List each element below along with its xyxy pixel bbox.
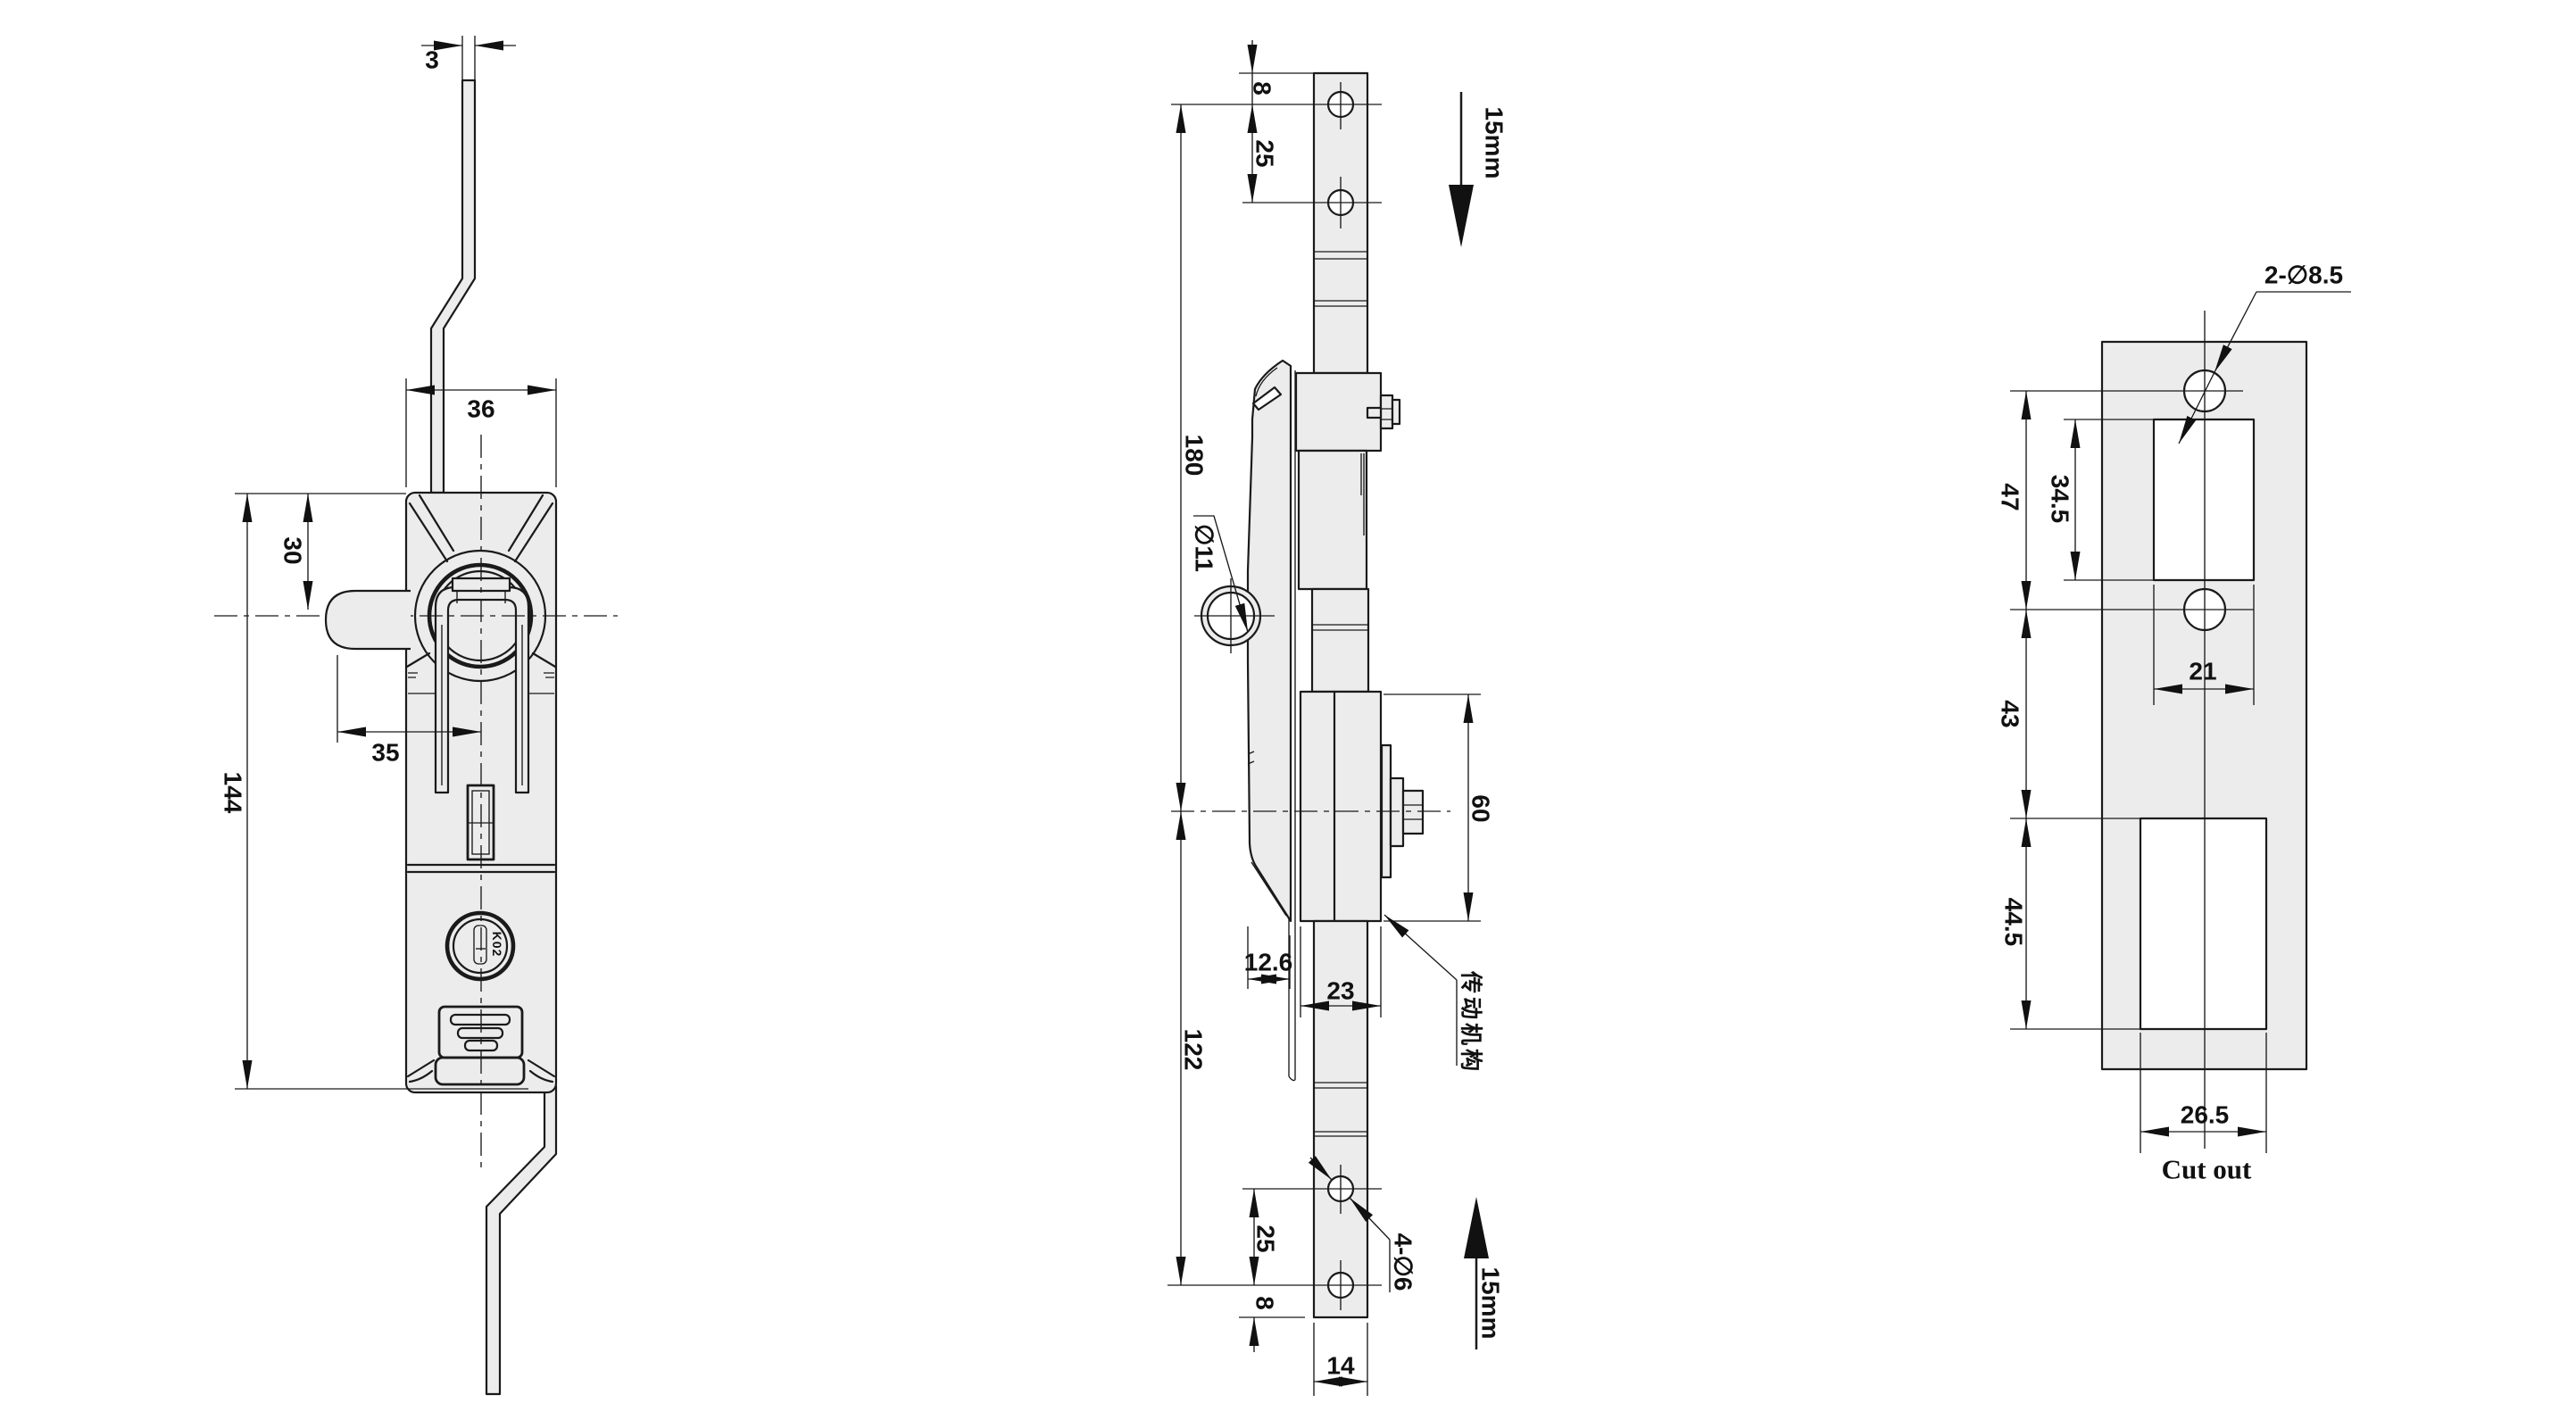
dim-bottom-hole-pitch: 25 [1252,1189,1280,1285]
top-block-nut-outer [1392,400,1400,424]
transmission-callout: 传动机构 [1384,915,1484,1075]
lower-cutout [2140,818,2266,1029]
dim-text: 180 [1181,435,1209,477]
dim-text: 3 [425,46,439,74]
drawing-sheet: K02 3 36 30 144 [0,0,2576,1428]
dim-text: 122 [1180,1029,1208,1071]
dim-text: 144 [220,772,247,814]
upper-actuating-rod [431,80,475,493]
cutout-caption: Cut out [2162,1154,2252,1185]
dim-text: ∅11 [1191,524,1218,572]
dim-text: 25 [1251,139,1279,167]
lower-actuating-rod [486,1086,556,1394]
travel-arrow-up-view: 15mm [1449,92,1508,247]
top-block-tab [1367,408,1381,418]
dim-text: 21 [2189,658,2216,685]
dim-text: 14 [1326,1352,1355,1380]
dim-body-width: 36 [406,378,556,487]
dim-text: 2-∅8.5 [2264,262,2343,289]
front-view: K02 3 36 30 144 [214,36,618,1394]
dim-upper-cutout-height: 34.5 [2047,419,2076,580]
dim-text: 36 [467,395,494,423]
mid-rod-segment [1312,589,1368,692]
dim-text: 23 [1326,977,1354,1005]
dim-text: 60 [1467,794,1495,822]
dim-text: 12.6 [1244,949,1293,976]
upper-cutout [2154,419,2254,580]
dim-text: 8 [1249,81,1276,95]
front-bezel-profile [1248,361,1291,921]
side-view: 8 25 180 122 ∅11 60 12.6 [1168,40,1508,1396]
transmission-label: 传动机构 [1458,970,1484,1075]
dim-upper-rod-span: 180 [1181,104,1209,811]
dim-text: 35 [371,739,399,767]
dim-rod-width: 14 [1314,1323,1367,1396]
top-block-nut [1381,395,1392,428]
dim-text: 30 [279,536,307,564]
key-code-label: K02 [490,932,504,958]
technical-drawing: K02 3 36 30 144 [0,0,2576,1428]
leader-line [1384,915,1457,980]
dim-text: 47 [1997,483,2024,511]
dim-bottom-hole-to-end: 8 [1239,1296,1305,1352]
shaft-boss [1391,778,1403,846]
dim-text: 8 [1251,1296,1279,1310]
travel-label: 15mm [1481,107,1508,179]
cutout-view: 47 34.5 43 44.5 21 26.5 2-∅8.5 [1997,262,2352,1185]
dim-lower-cutout-height: 44.5 [2000,818,2028,1029]
transmission-cam-box [1300,692,1381,921]
travel-label: 15mm [1477,1267,1505,1340]
shaft-nut [1403,791,1423,834]
release-lever-tab [326,591,411,649]
dim-hole-pitch: 47 [1997,391,2027,610]
dim-face-offset: 12.6 [1244,926,1293,989]
travel-arrow-head-up [1464,1197,1489,1258]
dim-hole-to-lower-cutout: 43 [1997,610,2027,818]
dim-text: 26.5 [2181,1101,2230,1129]
dim-text: 34.5 [2047,475,2074,524]
dim-top-end-to-hole: 8 [1239,40,1314,104]
mid-block [1299,451,1367,589]
dim-text: 25 [1252,1225,1280,1252]
dim-text: 43 [1997,700,2024,727]
travel-arrow-down-view: 15mm [1464,1197,1505,1349]
dim-text: 4-∅6 [1390,1233,1417,1291]
dim-text: 44.5 [2000,898,2028,947]
travel-arrow-head-down [1449,185,1474,247]
